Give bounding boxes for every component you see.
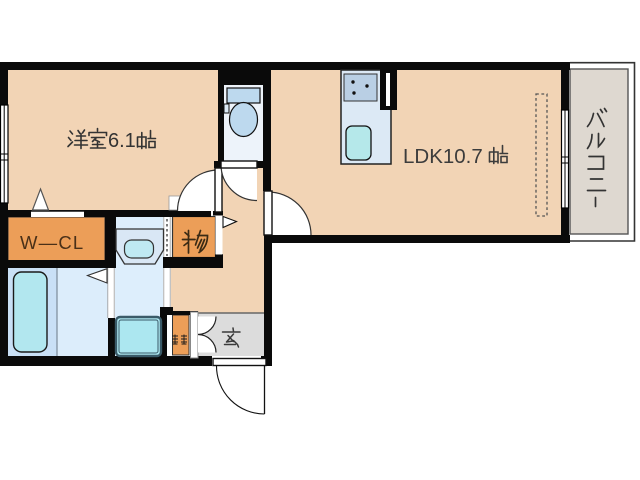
svg-text:W—CL: W—CL <box>20 232 84 253</box>
svg-text:LDK10.7: LDK10.7 <box>403 145 483 168</box>
svg-text:6.1: 6.1 <box>108 130 136 152</box>
